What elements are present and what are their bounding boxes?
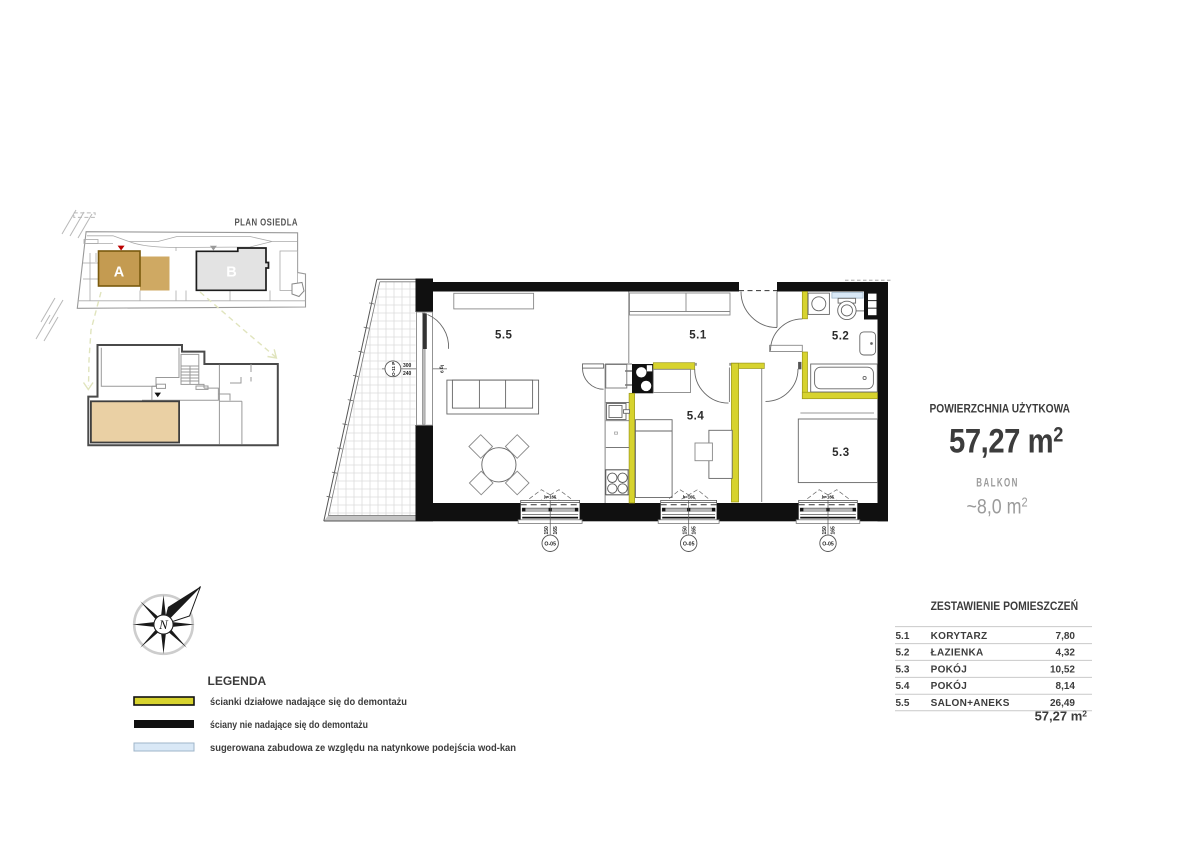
svg-text:KORYTARZ: KORYTARZ: [931, 631, 988, 642]
svg-text:5.4: 5.4: [896, 681, 910, 692]
svg-text:5.5: 5.5: [495, 330, 513, 342]
svg-text:150: 150: [544, 526, 550, 535]
svg-text:A: A: [114, 265, 125, 281]
svg-text:4,32: 4,32: [1056, 648, 1076, 659]
svg-text:lg 9: lg 9: [440, 365, 445, 373]
svg-text:5.4: 5.4: [687, 411, 705, 423]
svg-text:N: N: [158, 617, 169, 632]
svg-text:h=165: h=165: [683, 495, 696, 500]
svg-text:BALKON: BALKON: [976, 477, 1019, 489]
svg-text:165: 165: [553, 526, 559, 535]
svg-text:ŁAZIENKA: ŁAZIENKA: [931, 648, 984, 659]
svg-text:5.2: 5.2: [896, 648, 910, 659]
svg-text:150: 150: [683, 526, 689, 535]
svg-text:57,27 m2: 57,27 m2: [1035, 709, 1088, 724]
svg-text:POWIERZCHNIA UŻYTKOWA: POWIERZCHNIA UŻYTKOWA: [930, 401, 1071, 416]
svg-text:h=165: h=165: [544, 495, 557, 500]
svg-text:26,49: 26,49: [1050, 698, 1075, 709]
svg-text:POKÓJ: POKÓJ: [931, 679, 968, 692]
svg-text:240: 240: [403, 371, 412, 377]
svg-text:O-05: O-05: [544, 541, 556, 547]
svg-text:150: 150: [822, 526, 828, 535]
svg-text:POKÓJ: POKÓJ: [931, 662, 968, 675]
svg-text:5.1: 5.1: [689, 330, 707, 342]
svg-text:165: 165: [691, 526, 697, 535]
svg-text:~8,0 m2: ~8,0 m2: [967, 495, 1028, 519]
svg-text:300: 300: [403, 363, 412, 369]
svg-text:7,80: 7,80: [1056, 631, 1076, 642]
svg-text:PLAN OSIEDLA: PLAN OSIEDLA: [235, 217, 299, 229]
svg-text:SALON+ANEKS: SALON+ANEKS: [931, 698, 1010, 709]
svg-text:h=165: h=165: [822, 495, 835, 500]
svg-text:O-05: O-05: [683, 541, 695, 547]
svg-text:O-05: O-05: [822, 541, 834, 547]
svg-text:LEGENDA: LEGENDA: [208, 674, 267, 688]
svg-text:5.3: 5.3: [896, 664, 910, 675]
svg-text:sugerowana zabudowa ze względu: sugerowana zabudowa ze względu na natynk…: [210, 743, 516, 754]
svg-text:ścianki działowe nadające się: ścianki działowe nadające się do demonta…: [210, 697, 407, 708]
svg-text:57,27 m2: 57,27 m2: [949, 421, 1063, 460]
svg-text:5.2: 5.2: [832, 331, 850, 343]
svg-text:5.3: 5.3: [832, 447, 850, 459]
svg-text:B: B: [226, 265, 236, 281]
svg-text:O-11 P: O-11 P: [391, 362, 396, 376]
svg-text:ZESTAWIENIE POMIESZCZEŃ: ZESTAWIENIE POMIESZCZEŃ: [931, 598, 1079, 613]
svg-text:8,14: 8,14: [1056, 681, 1076, 692]
svg-text:5.5: 5.5: [896, 698, 910, 709]
svg-text:5.1: 5.1: [896, 631, 910, 642]
svg-text:ściany nie nadające się do dem: ściany nie nadające się do demontażu: [210, 720, 368, 731]
svg-text:165: 165: [831, 526, 837, 535]
svg-text:10,52: 10,52: [1050, 664, 1075, 675]
